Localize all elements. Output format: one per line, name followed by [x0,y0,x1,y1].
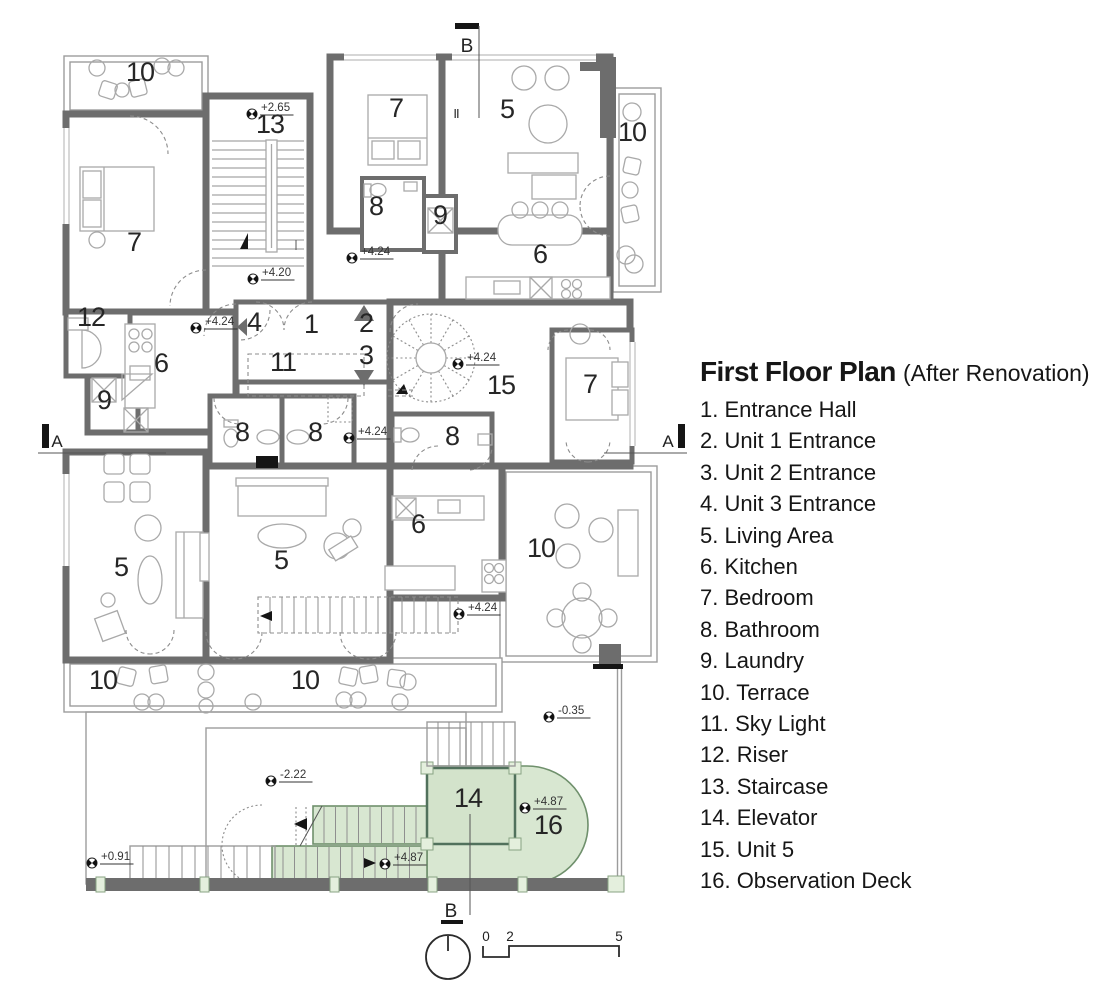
level-marker: +0.91 [85,851,134,870]
section-label: A [51,432,63,451]
section-label: B [461,36,474,57]
room-number-label: II [453,106,459,121]
legend-item: 6. Kitchen [700,551,1105,582]
legend-item: 14. Elevator [700,802,1105,833]
legend-item: 15. Unit 5 [700,834,1105,865]
level-value: +4.20 [262,267,291,279]
legend-item: 1. Entrance Hall [700,394,1105,425]
legend-item: 10. Terrace [700,677,1105,708]
room-number-label: 4 [247,307,262,337]
sofa-symbol [176,532,203,618]
legend-item: 2. Unit 1 Entrance [700,425,1105,456]
kitchen-counter [466,277,610,299]
room-number-label: 10 [126,57,154,87]
legend-item: 4. Unit 3 Entrance [700,488,1105,519]
level-value: +4.24 [205,316,235,328]
room-number-label: 6 [533,239,547,269]
level-value: -0.35 [558,705,584,717]
level-value: +4.87 [394,852,423,864]
room-number-label: 10 [618,117,646,147]
room-number-label: 10 [89,665,117,695]
room-number-label: 7 [127,227,141,257]
room-number-label: 8 [235,417,249,447]
legend-item: 8. Bathroom [700,614,1105,645]
level-marker: +4.24 [452,602,501,621]
page-subtitle: (After Renovation) [903,360,1090,386]
level-value: +2.65 [261,102,290,114]
legend-list: 1. Entrance Hall2. Unit 1 Entrance3. Uni… [700,394,1105,897]
room-number-label: 12 [77,302,105,332]
room-number-label: 3 [359,340,373,370]
page: 101375II10789612412361191578885561010101… [0,0,1113,1000]
level-value: -2.22 [280,769,306,781]
scale-labels: 025 [482,929,623,944]
room-number-label: 1 [304,309,318,339]
legend: First Floor Plan (After Renovation) 1. E… [700,356,1105,897]
sofa-symbol [508,153,578,173]
room-number-label: 11 [270,347,296,377]
room-number-label: 5 [500,94,514,124]
legend-item: 5. Living Area [700,520,1105,551]
room-number-label: 16 [534,810,562,840]
level-marker: +4.24 [345,246,394,265]
sofa-symbol [238,486,326,516]
room-number-label: 6 [154,348,168,378]
legend-item: 11. Sky Light [700,708,1105,739]
legend-item: 9. Laundry [700,645,1105,676]
room-number-label: 6 [411,509,425,539]
deck-post [599,644,621,666]
level-value: +4.87 [534,796,563,808]
room-number-label: 5 [114,552,128,582]
room-number-label: 8 [369,191,383,221]
room-number-label: 15 [487,370,515,400]
scale-label: 2 [506,929,514,944]
deck-boundary-wall [86,876,624,892]
room-number-label: 8 [308,417,322,447]
scale-label: 0 [482,929,490,944]
room-number-label: 9 [97,385,111,415]
level-value: +4.24 [361,246,391,258]
level-value: +0.91 [101,851,130,863]
level-value: +4.24 [358,426,388,438]
stair-direction-arrow [294,818,307,830]
room-number-label: 8 [445,421,459,451]
section-label: A [662,432,674,451]
legend-item: 13. Staircase [700,771,1105,802]
level-value: +4.24 [467,352,497,364]
north-arrow [426,935,470,979]
room-number-label: 5 [274,545,288,575]
room-number-label: 9 [433,200,447,230]
legend-item: 3. Unit 2 Entrance [700,457,1105,488]
legend-item: 12. Riser [700,739,1105,770]
level-value: +4.24 [468,602,498,614]
room-number-label: 10 [527,533,555,563]
room-number-label: 10 [291,665,319,695]
scale-bar [483,946,619,957]
level-marker: -0.35 [542,705,591,724]
legend-item: 16. Observation Deck [700,865,1105,896]
room-number-label: 2 [359,308,373,338]
floor-plan-drawing: 101375II10789612412361191578885561010101… [0,0,700,1000]
level-marker: -2.22 [264,769,313,788]
scale-label: 5 [615,929,623,944]
room-number-label: 14 [454,783,483,813]
page-title: First Floor Plan (After Renovation) [700,356,1105,388]
section-label: B [445,901,458,922]
room-number-label: 7 [389,93,403,123]
legend-item: 7. Bedroom [700,582,1105,613]
room-number-label: 7 [583,369,597,399]
